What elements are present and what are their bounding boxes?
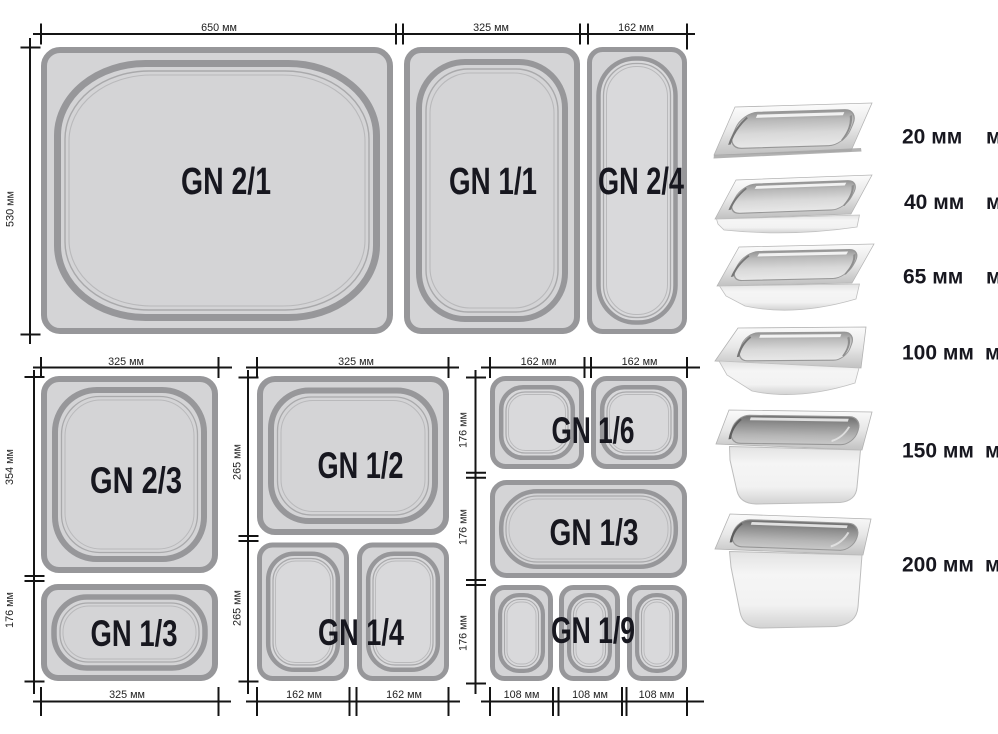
svg-text:108 мм: 108 мм [639, 689, 675, 701]
svg-text:GN 1/4: GN 1/4 [318, 612, 404, 653]
svg-text:265 мм: 265 мм [232, 590, 244, 626]
svg-text:мм: мм [985, 554, 998, 577]
svg-text:265 мм: 265 мм [232, 444, 244, 480]
svg-text:325 мм: 325 мм [338, 356, 374, 368]
svg-text:176 мм: 176 мм [4, 592, 16, 628]
svg-text:162 мм: 162 мм [618, 22, 654, 34]
svg-text:мм: мм [985, 342, 998, 365]
svg-text:108 мм: 108 мм [572, 689, 608, 701]
svg-text:GN 1/3: GN 1/3 [91, 613, 178, 654]
svg-text:GN 2/3: GN 2/3 [90, 460, 182, 501]
svg-text:200 мм: 200 мм [902, 554, 974, 577]
svg-text:65 мм: 65 мм [903, 266, 963, 289]
svg-text:GN 1/2: GN 1/2 [318, 445, 404, 486]
svg-text:650 мм: 650 мм [201, 22, 237, 34]
svg-text:176 мм: 176 мм [458, 509, 470, 545]
svg-text:мм: мм [986, 126, 998, 149]
svg-text:325 мм: 325 мм [109, 689, 145, 701]
svg-text:мм: мм [986, 266, 998, 289]
svg-text:GN 2/4: GN 2/4 [598, 161, 684, 203]
svg-text:162 мм: 162 мм [386, 689, 422, 701]
svg-text:354 мм: 354 мм [4, 449, 16, 485]
svg-text:162 мм: 162 мм [622, 356, 658, 368]
svg-text:176 мм: 176 мм [458, 615, 470, 651]
svg-text:150 мм: 150 мм [902, 440, 974, 463]
svg-text:GN 1/3: GN 1/3 [550, 512, 639, 553]
svg-text:20 мм: 20 мм [902, 126, 962, 149]
svg-text:GN 1/9: GN 1/9 [551, 610, 635, 651]
svg-text:325 мм: 325 мм [108, 356, 144, 368]
svg-text:108 мм: 108 мм [504, 689, 540, 701]
svg-text:GN 2/1: GN 2/1 [181, 161, 271, 203]
svg-text:162 мм: 162 мм [286, 689, 322, 701]
svg-text:176 мм: 176 мм [458, 412, 470, 448]
svg-text:GN 1/1: GN 1/1 [449, 161, 537, 203]
svg-text:мм: мм [985, 440, 998, 463]
svg-text:мм: мм [986, 191, 998, 214]
svg-text:162 мм: 162 мм [521, 356, 557, 368]
svg-text:GN 1/6: GN 1/6 [552, 410, 635, 451]
svg-text:40 мм: 40 мм [904, 191, 964, 214]
svg-text:530 мм: 530 мм [5, 191, 17, 227]
svg-text:100 мм: 100 мм [902, 342, 974, 365]
svg-text:325 мм: 325 мм [473, 22, 509, 34]
